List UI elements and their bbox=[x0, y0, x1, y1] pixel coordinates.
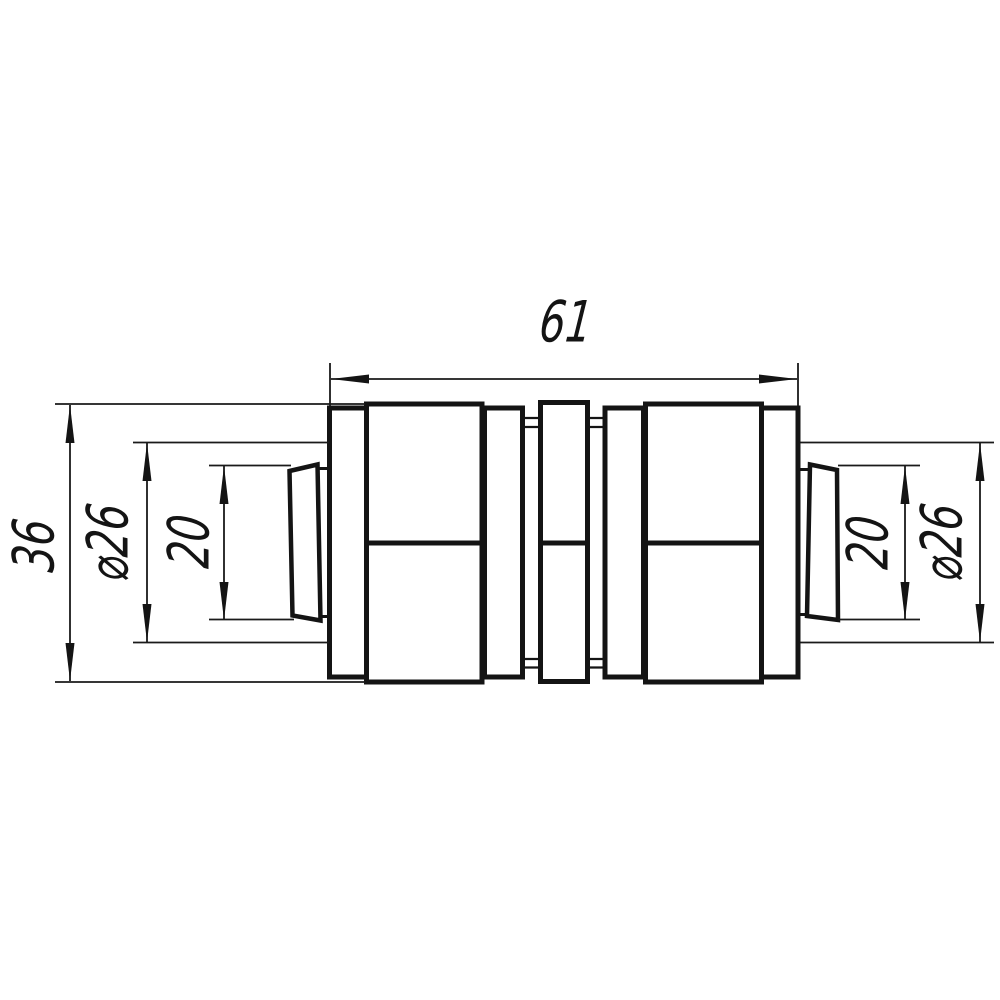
dim-label-left-bore: 20 bbox=[156, 512, 222, 571]
arrowhead-top bbox=[976, 443, 985, 481]
dim-right-bore: 20 bbox=[835, 466, 920, 621]
dim-label-body-height: 36 bbox=[1, 516, 67, 575]
dim-label-overall-length: 61 bbox=[536, 289, 595, 355]
right-collar bbox=[762, 408, 799, 677]
arrowhead-bottom bbox=[220, 582, 229, 620]
arrowhead-left bbox=[331, 375, 369, 384]
dim-overall-length: 61 bbox=[330, 289, 798, 406]
dim-label-right-outer-diameter: ⌀26 bbox=[909, 500, 975, 584]
dim-left-bore: 20 bbox=[156, 466, 294, 621]
arrowhead-top bbox=[143, 443, 152, 481]
arrowhead-bottom bbox=[143, 604, 152, 642]
coupling-engineering-drawing: 61 36 ⌀26 20 bbox=[0, 0, 1000, 1000]
dim-label-left-outer-diameter: ⌀26 bbox=[75, 500, 141, 584]
left-nose-cone bbox=[290, 465, 321, 621]
left-retainer-ring bbox=[485, 408, 523, 677]
arrowhead-top bbox=[66, 405, 75, 443]
part-silhouette bbox=[290, 403, 839, 683]
arrowhead-right bbox=[759, 375, 797, 384]
arrowhead-top bbox=[901, 466, 910, 504]
right-retainer-ring bbox=[605, 408, 644, 677]
left-collar bbox=[330, 408, 367, 677]
arrowhead-bottom bbox=[901, 582, 910, 620]
arrowhead-bottom bbox=[66, 643, 75, 681]
drawing-sheet: 61 36 ⌀26 20 bbox=[0, 0, 1000, 1000]
extension-line bbox=[330, 363, 798, 406]
dim-label-right-bore: 20 bbox=[835, 513, 901, 572]
arrowhead-top bbox=[220, 466, 229, 504]
arrowhead-bottom bbox=[976, 604, 985, 642]
right-nose-cone bbox=[807, 465, 838, 621]
